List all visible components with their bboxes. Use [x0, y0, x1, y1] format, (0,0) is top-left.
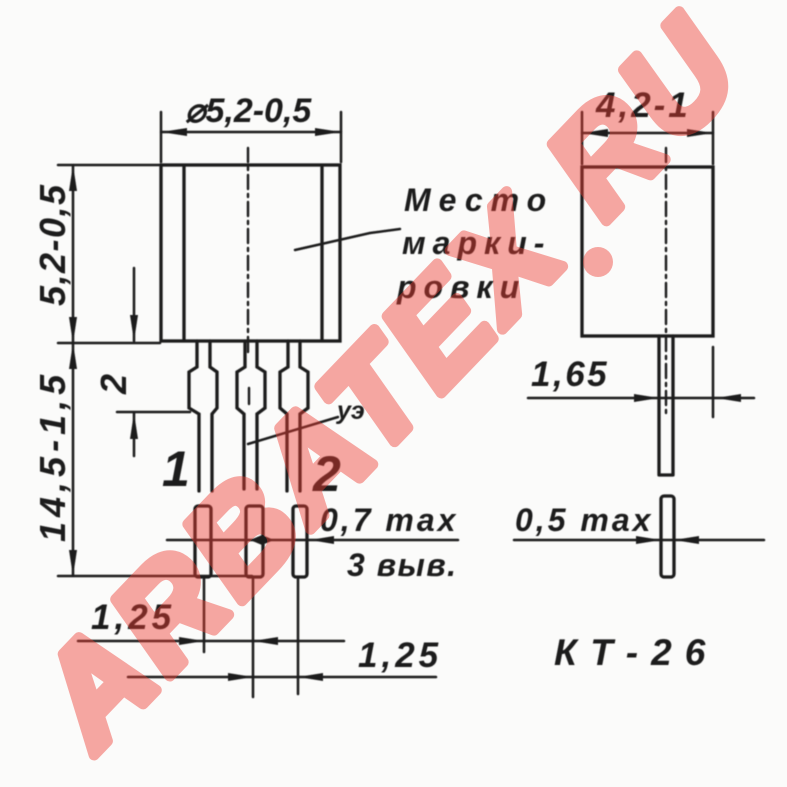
svg-text:⌀5,2-0,5: ⌀5,2-0,5	[185, 92, 312, 130]
svg-text:1,25: 1,25	[358, 636, 442, 675]
svg-text:КТ-26: КТ-26	[554, 632, 718, 673]
svg-text:3 выв.: 3 выв.	[347, 547, 458, 583]
svg-text:5,2-0,5: 5,2-0,5	[32, 183, 73, 306]
svg-text:14,5-1,5: 14,5-1,5	[32, 370, 73, 542]
svg-text:0,5 max: 0,5 max	[515, 502, 653, 538]
svg-text:2: 2	[93, 374, 134, 395]
svg-text:1,65: 1,65	[531, 355, 609, 394]
